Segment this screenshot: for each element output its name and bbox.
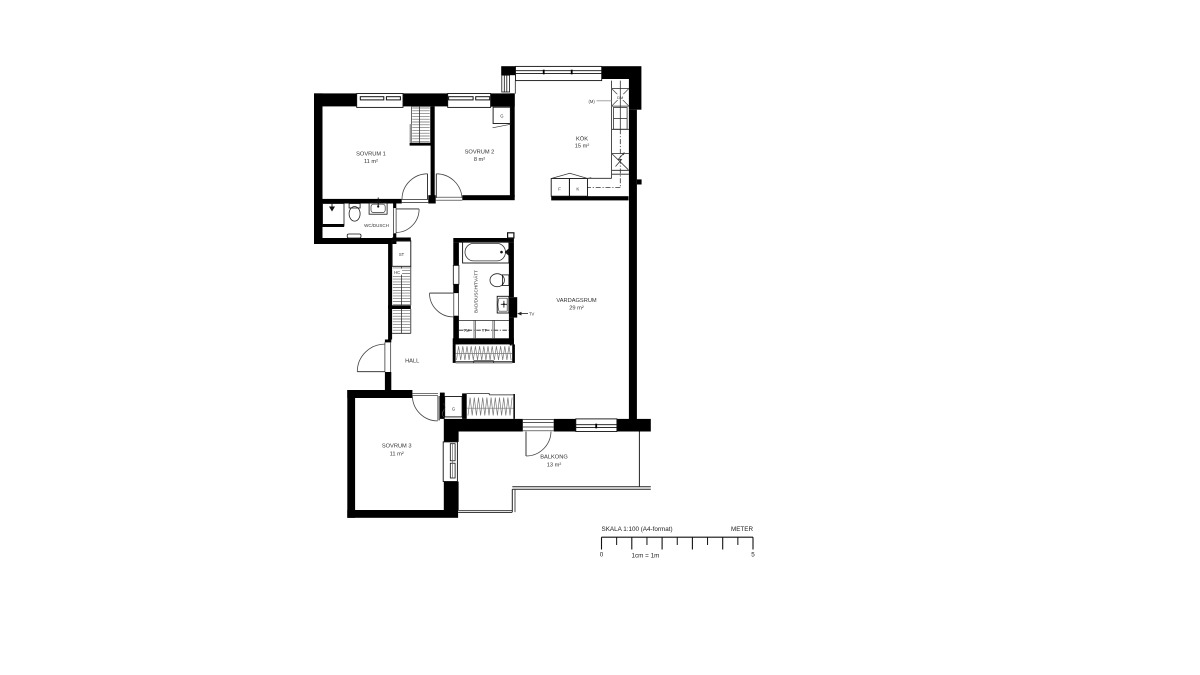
svg-text:(M): (M) [589, 99, 596, 104]
svg-text:G: G [452, 407, 455, 412]
svg-text:METER: METER [731, 526, 753, 533]
svg-text:BALKONG: BALKONG [540, 455, 568, 461]
svg-text:15 m²: 15 m² [575, 144, 590, 150]
svg-text:TM: TM [463, 328, 470, 333]
svg-text:VARDAGSRUM: VARDAGSRUM [556, 298, 597, 304]
svg-text:1cm = 1m: 1cm = 1m [632, 553, 660, 560]
svg-text:11 m²: 11 m² [390, 451, 404, 457]
svg-text:13 m²: 13 m² [547, 462, 562, 468]
svg-text:WC/DUSCH: WC/DUSCH [364, 223, 389, 228]
svg-text:5: 5 [751, 552, 755, 559]
svg-text:29 m²: 29 m² [569, 306, 584, 312]
svg-text:SOVRUM 3: SOVRUM 3 [382, 444, 412, 450]
svg-text:F: F [558, 187, 561, 192]
svg-text:8 m²: 8 m² [474, 157, 485, 163]
svg-text:TV: TV [529, 312, 535, 317]
svg-text:0: 0 [600, 552, 604, 559]
svg-text:G: G [500, 113, 503, 118]
svg-text:11 m²: 11 m² [364, 159, 378, 165]
svg-text:K: K [576, 187, 579, 192]
svg-text:SOVRUM 1: SOVRUM 1 [356, 152, 386, 158]
svg-text:HALL: HALL [405, 359, 419, 365]
svg-text:ST: ST [399, 252, 405, 257]
svg-text:SKALA 1:100 (A4-format): SKALA 1:100 (A4-format) [602, 526, 673, 533]
svg-text:BAD/DUSCH/TVÄTT: BAD/DUSCH/TVÄTT [473, 270, 479, 313]
svg-text:TT: TT [482, 328, 488, 333]
svg-text:KÖK: KÖK [576, 136, 588, 143]
svg-text:HC: HC [394, 270, 400, 275]
svg-text:SOVRUM 2: SOVRUM 2 [465, 150, 495, 156]
